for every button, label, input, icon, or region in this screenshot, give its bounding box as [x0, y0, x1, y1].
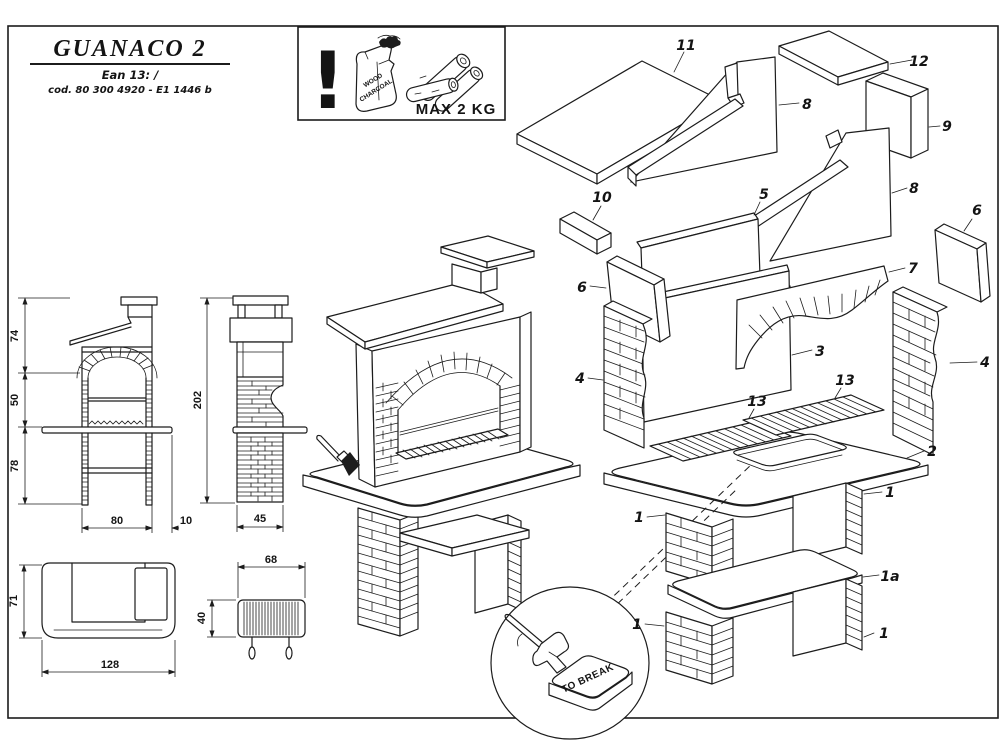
dim-front-width: 80	[111, 515, 123, 527]
warning-content: ! WOOD CHARCOAL	[310, 35, 496, 127]
callout-1-bottom-left: 1	[632, 617, 642, 633]
grill-detail	[238, 600, 305, 659]
detail-circle: TO BREAK	[491, 587, 649, 739]
part-1-upper-right-leg	[793, 483, 862, 560]
part-4-right-column	[893, 287, 947, 455]
part-12-cap-slab	[779, 31, 888, 85]
charcoal-bag-icon: WOOD CHARCOAL	[356, 35, 401, 111]
callout-1-top-right: 1	[885, 485, 895, 501]
callout-1-top-left: 1	[634, 510, 644, 526]
assembled-view	[303, 236, 580, 636]
callout-6b: 6	[972, 203, 982, 219]
dim-plan-depth: 71	[8, 595, 20, 607]
side-view	[230, 296, 307, 502]
callout-1a: 1a	[880, 569, 899, 585]
dim-front-legs: 78	[9, 460, 21, 472]
dim-front-upper: 74	[9, 329, 21, 342]
technical-drawing: GUANACO 2 Ean 13: / cod. 80 300 4920 - E…	[0, 0, 1000, 750]
callout-13b: 13	[835, 373, 854, 389]
callout-4a: 4	[574, 371, 585, 387]
callout-5: 5	[759, 187, 769, 203]
callout-10: 10	[592, 190, 612, 206]
dim-side-depth: 45	[254, 513, 266, 525]
ean-code: Ean 13: /	[102, 68, 159, 82]
part-6-right-slab	[935, 224, 990, 302]
dim-grill-depth: 40	[196, 612, 208, 624]
dim-total-height: 202	[192, 391, 204, 409]
exclamation-icon: !	[310, 37, 346, 127]
exploded-view	[517, 31, 990, 684]
callout-8b: 8	[909, 181, 919, 197]
dim-front-firebox: 50	[9, 394, 21, 406]
dim-overhang: 10	[180, 515, 192, 527]
instruction-sheet: GUANACO 2 Ean 13: / cod. 80 300 4920 - E…	[0, 0, 1000, 750]
callout-3: 3	[815, 344, 825, 360]
callout-1-bottom-right: 1	[879, 626, 889, 642]
title-block: GUANACO 2 Ean 13: / cod. 80 300 4920 - E…	[30, 36, 230, 96]
callout-13a: 13	[747, 394, 766, 410]
page-title: GUANACO 2	[53, 36, 206, 62]
callout-6a: 6	[577, 280, 587, 296]
part-1-lower-right-leg	[793, 579, 862, 656]
dim-plan-width: 128	[101, 659, 119, 671]
part-4-left-column	[604, 301, 652, 448]
part-10-brick	[560, 212, 611, 254]
part-1-lower-left-leg	[666, 612, 733, 684]
callout-7: 7	[908, 261, 918, 277]
max-load-label: MAX 2 KG	[416, 101, 497, 118]
dim-grill-width: 68	[265, 554, 277, 566]
callout-4b: 4	[979, 355, 990, 371]
plan-view	[42, 563, 175, 638]
front-view	[42, 297, 172, 505]
callout-11: 11	[676, 38, 695, 54]
callout-9: 9	[942, 119, 952, 135]
part-2-worktop	[604, 432, 928, 517]
callout-12: 12	[909, 54, 928, 70]
callout-8a: 8	[802, 97, 812, 113]
product-code: cod. 80 300 4920 - E1 1446 b	[48, 85, 212, 96]
callout-2: 2	[927, 444, 937, 460]
